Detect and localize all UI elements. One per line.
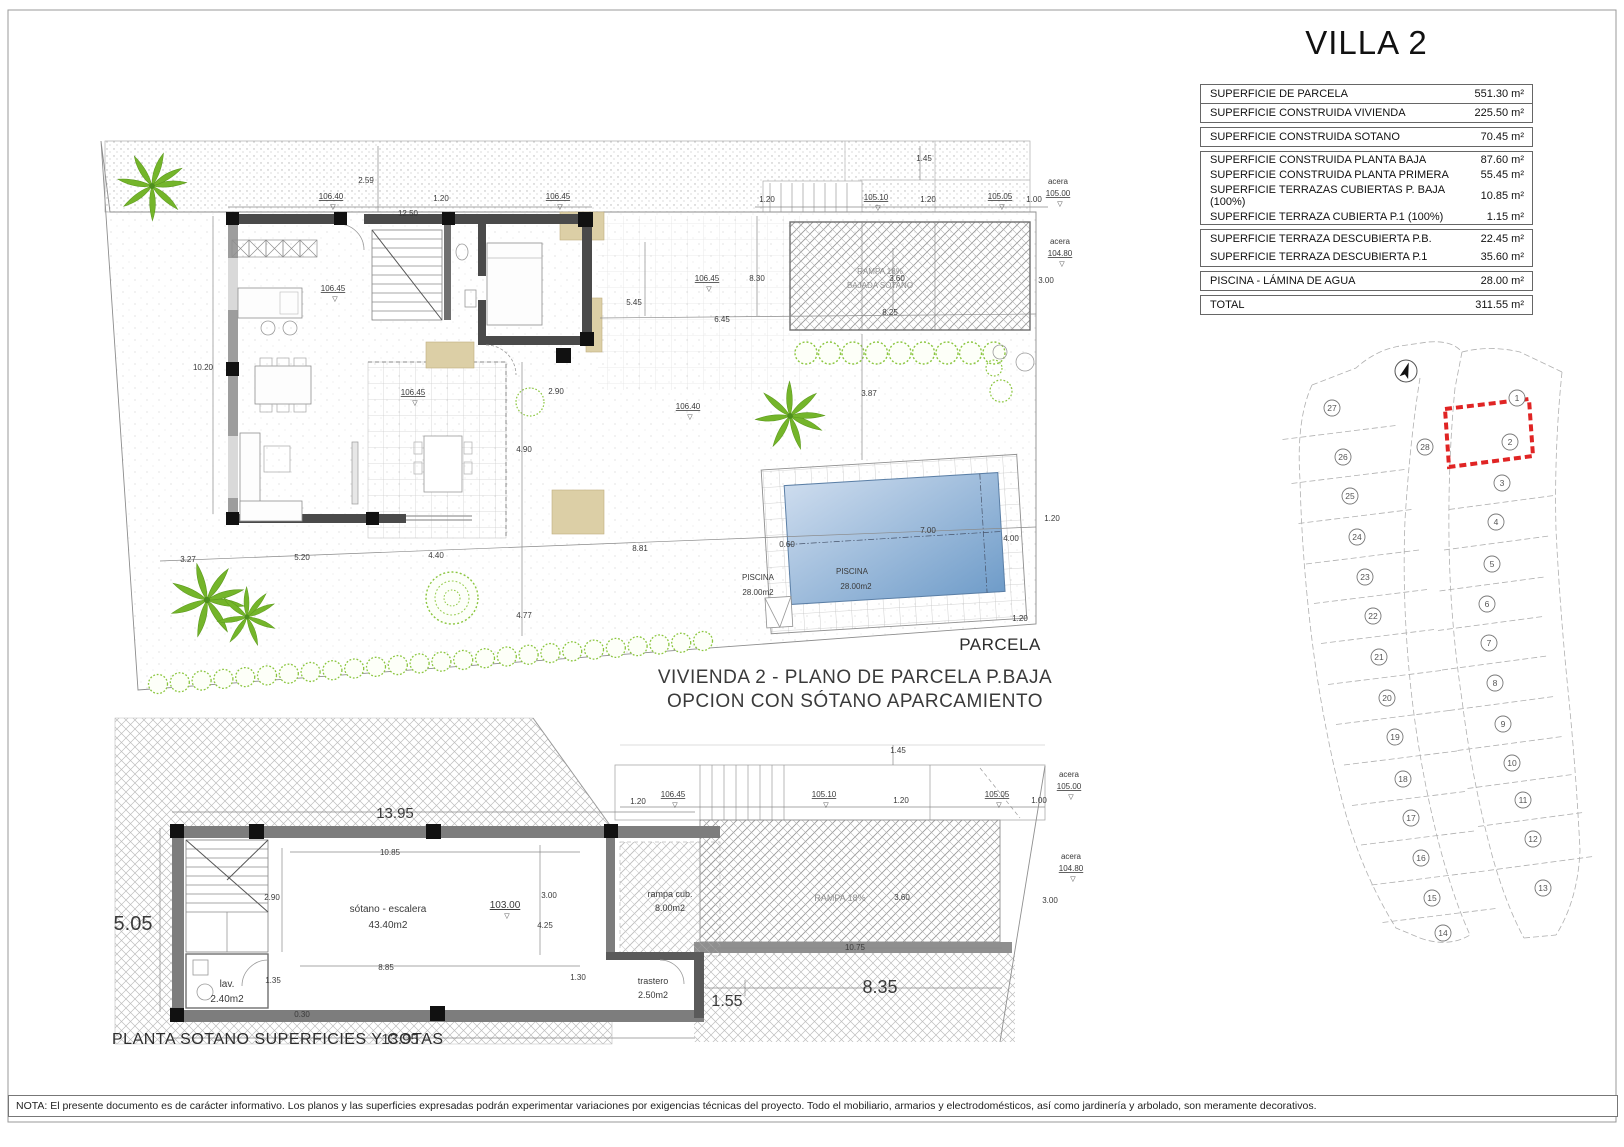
dim-label: 3.00 xyxy=(1042,896,1058,905)
table-row: SUPERFICIE TERRAZA DESCUBIERTA P.135.60 … xyxy=(1201,248,1532,266)
hedge-bush xyxy=(606,638,625,657)
parcel-number: 15 xyxy=(1427,893,1437,903)
parcel-divider xyxy=(1383,909,1496,923)
plan-baja-caption-line2: OPCION CON SÓTANO APARCAMIENTO xyxy=(620,690,1090,712)
parcel-divider xyxy=(1283,426,1396,440)
table-row: SUPERFICIE DE PARCELA551.30 m² xyxy=(1201,85,1532,103)
dim-label: 5.45 xyxy=(626,298,642,307)
dim-label: 1.30 xyxy=(570,973,586,982)
dim-label: acera xyxy=(1050,237,1071,246)
hedge-bush xyxy=(323,661,342,680)
hedge-bush xyxy=(563,642,582,661)
parcel-number: 8 xyxy=(1493,678,1498,688)
dim-label: 7.00 xyxy=(920,526,936,535)
hedge-bush xyxy=(519,645,538,664)
level-marker-icon: ▽ xyxy=(996,802,1002,809)
level-marker-icon: ▽ xyxy=(672,802,678,809)
row-label: PISCINA - LÁMINA DE AGUA xyxy=(1210,275,1356,287)
row-label: SUPERFICIE DE PARCELA xyxy=(1210,88,1348,100)
dim-label: 105.05 xyxy=(988,192,1013,201)
level-marker-icon: ▽ xyxy=(1057,201,1063,208)
dim-label: 6.45 xyxy=(714,315,730,324)
hedge-bush xyxy=(913,342,935,364)
row-value: 22.45 m² xyxy=(1471,233,1524,245)
dim-label: 4.25 xyxy=(537,921,553,930)
hedge-bush xyxy=(214,669,233,688)
row-label: SUPERFICIE CONSTRUIDA PLANTA PRIMERA xyxy=(1210,169,1449,181)
level-marker-icon: ▽ xyxy=(1068,794,1074,801)
north-arrow-icon xyxy=(1395,360,1417,382)
hedge-bush xyxy=(842,342,864,364)
parcel-number: 18 xyxy=(1398,774,1408,784)
hedge-bush xyxy=(819,342,841,364)
dim-label: 106.45 xyxy=(546,192,571,201)
parcel-divider xyxy=(1352,792,1465,806)
dim-label: 8.85 xyxy=(378,963,394,972)
level-marker-icon: ▽ xyxy=(332,296,338,303)
parcel-number: 1 xyxy=(1515,393,1520,403)
dim-label: 28.00m2 xyxy=(840,582,872,591)
row-value: 35.60 m² xyxy=(1471,251,1524,263)
hedge-bush xyxy=(960,342,982,364)
dim-label: 3.00 xyxy=(541,891,557,900)
dim-label: 5.05 xyxy=(114,913,153,935)
dim-label: RAMPA 18% xyxy=(857,267,903,276)
dim-label: 10.20 xyxy=(193,363,214,372)
plan-baja-caption: VIVIENDA 2 - PLANO DE PARCELA P.BAJA OPC… xyxy=(620,666,1090,712)
parcel-number: 20 xyxy=(1382,693,1392,703)
hedge-bush xyxy=(301,662,320,681)
hedge-bush xyxy=(432,652,451,671)
table-row: SUPERFICIE CONSTRUIDA PLANTA BAJA87.60 m… xyxy=(1201,152,1532,167)
row-value: 28.00 m² xyxy=(1471,275,1524,287)
parcel-number: 4 xyxy=(1494,517,1499,527)
plan-sheet: 2.59106.40▽12.501.20106.45▽1.451.20105.1… xyxy=(0,0,1624,1147)
parcel-number: 26 xyxy=(1338,452,1348,462)
level-marker-icon: ▽ xyxy=(823,802,829,809)
highlighted-parcel-outline xyxy=(1445,399,1533,467)
dim-label: 1.00 xyxy=(1026,195,1042,204)
dim-label: acera xyxy=(1061,852,1082,861)
dim-label: PISCINA xyxy=(836,567,869,576)
hedge-bush xyxy=(236,668,255,687)
row-label: TOTAL xyxy=(1210,299,1244,311)
row-label: SUPERFICIE TERRAZA DESCUBIERTA P.B. xyxy=(1210,233,1432,245)
dim-label: 8.25 xyxy=(882,308,898,317)
row-label: SUPERFICIE TERRAZA DESCUBIERTA P.1 xyxy=(1210,251,1427,263)
parcel-number: 7 xyxy=(1487,638,1492,648)
row-value: 1.15 m² xyxy=(1477,211,1524,223)
dim-label: 106.45 xyxy=(321,284,346,293)
level-marker-icon: ▽ xyxy=(706,286,712,293)
dim-label: 105.10 xyxy=(864,193,889,202)
dim-label: 1.55 xyxy=(711,993,742,1010)
plan-baja-drawing: 2.59106.40▽12.501.20106.45▽1.451.20105.1… xyxy=(101,141,1073,694)
parcel-number: 24 xyxy=(1352,532,1362,542)
dim-label: 1.20 xyxy=(1012,614,1028,623)
table-group: TOTAL311.55 m² xyxy=(1200,295,1533,315)
dim-label: 104.80 xyxy=(1059,864,1084,873)
dim-label: 3.00 xyxy=(1038,276,1054,285)
table-row: SUPERFICIE TERRAZAS CUBIERTAS P. BAJA (1… xyxy=(1201,182,1532,209)
dim-label: 8.81 xyxy=(632,544,648,553)
dim-label: acera xyxy=(1059,770,1080,779)
parcel-dividers xyxy=(1283,426,1594,923)
table-row: PISCINA - LÁMINA DE AGUA28.00 m² xyxy=(1201,272,1532,290)
dim-label: 3.27 xyxy=(180,555,196,564)
dim-label: 106.45 xyxy=(661,790,686,799)
level-marker-icon: ▽ xyxy=(875,205,881,212)
dim-label: 104.80 xyxy=(1048,249,1073,258)
parcel-number: 27 xyxy=(1327,403,1337,413)
parcel-number: 13 xyxy=(1538,883,1548,893)
table-row: SUPERFICIE CONSTRUIDA PLANTA PRIMERA55.4… xyxy=(1201,167,1532,182)
parcel-numbers: 1234567891011121314151617181920212223242… xyxy=(1324,390,1551,941)
parcel-divider xyxy=(1314,590,1427,604)
parcel-divider xyxy=(1336,711,1449,725)
level-marker-icon: ▽ xyxy=(999,204,1005,211)
note-text: NOTA: El presente documento es de caráct… xyxy=(16,1100,1317,1112)
row-value: 10.85 m² xyxy=(1471,190,1524,202)
dim-label: 43.40m2 xyxy=(369,920,408,931)
hedge-bush xyxy=(149,675,168,694)
dim-label: 1.45 xyxy=(890,746,906,755)
table-group: SUPERFICIE CONSTRUIDA SOTANO70.45 m² xyxy=(1200,127,1533,147)
dim-label: 0.30 xyxy=(294,1010,310,1019)
plan-baja-caption-line1: VIVIENDA 2 - PLANO DE PARCELA P.BAJA xyxy=(620,666,1090,690)
dim-label: 105.00 xyxy=(1057,782,1082,791)
dim-label: 106.40 xyxy=(319,192,344,201)
row-value: 55.45 m² xyxy=(1471,169,1524,181)
parcel-number: 10 xyxy=(1507,758,1517,768)
parcel-number: 3 xyxy=(1500,478,1505,488)
dim-label: 106.45 xyxy=(695,274,720,283)
dim-label: 28.00m2 xyxy=(742,588,774,597)
hedge-bush xyxy=(410,654,429,673)
parcel-number: 9 xyxy=(1501,719,1506,729)
dim-label: 2.90 xyxy=(548,387,564,396)
parcel-number: 2 xyxy=(1508,437,1513,447)
hedge-bush xyxy=(694,632,713,651)
parcel-divider xyxy=(1292,470,1405,484)
parcel-number: 25 xyxy=(1345,491,1355,501)
dim-label: 12.50 xyxy=(398,209,419,218)
parcel-number: 22 xyxy=(1368,611,1378,621)
pool xyxy=(784,473,1005,605)
parcel-number: 5 xyxy=(1490,559,1495,569)
table-row: SUPERFICIE CONSTRUIDA SOTANO70.45 m² xyxy=(1201,128,1532,146)
dim-label: 8.30 xyxy=(749,274,765,283)
dim-label: 0.60 xyxy=(779,540,795,549)
parcel-number: 17 xyxy=(1406,813,1416,823)
parcel-number: 12 xyxy=(1528,834,1538,844)
surface-summary-table: SUPERFICIE DE PARCELA551.30 m²SUPERFICIE… xyxy=(1200,84,1533,315)
parcel-number: 14 xyxy=(1438,928,1448,938)
hedge-bush xyxy=(345,659,364,678)
hedge-bush xyxy=(866,342,888,364)
dim-label: RAMPA 18% xyxy=(814,893,865,903)
dim-label: 1.20 xyxy=(920,195,936,204)
hedge-bush xyxy=(541,644,560,663)
parcel-divider xyxy=(1344,751,1457,765)
parcel-divider xyxy=(1449,496,1554,510)
dim-label: 103.00 xyxy=(490,900,521,911)
row-value: 87.60 m² xyxy=(1471,154,1524,166)
dim-label: lav. xyxy=(220,979,235,990)
dim-label: 2.90 xyxy=(264,893,280,902)
dim-label: 3.87 xyxy=(861,389,877,398)
plan-sotano-drawing: 13.9510.852.905.05sótano - escalera43.40… xyxy=(114,718,1084,1048)
dim-label: PISCINA xyxy=(742,573,775,582)
row-label: SUPERFICIE TERRAZAS CUBIERTAS P. BAJA (1… xyxy=(1210,184,1471,208)
hedge-bush xyxy=(497,647,516,666)
parcel-number: 21 xyxy=(1374,652,1384,662)
row-label: SUPERFICIE CONSTRUIDA SOTANO xyxy=(1210,131,1400,143)
parcel-divider xyxy=(1478,813,1583,827)
dim-label: 8.00m2 xyxy=(655,903,685,913)
hedge-bush xyxy=(628,637,647,656)
parcel-divider xyxy=(1440,577,1545,591)
dim-label: 3.60 xyxy=(894,893,910,902)
level-marker-icon: ▽ xyxy=(1059,261,1065,268)
hedge-bush xyxy=(170,673,189,692)
parcel-number: 19 xyxy=(1390,732,1400,742)
parcel-divider xyxy=(1468,775,1573,789)
bush xyxy=(426,572,478,624)
dim-label: 4.90 xyxy=(516,445,532,454)
dim-label: 10.85 xyxy=(380,848,401,857)
table-row: TOTAL311.55 m² xyxy=(1201,296,1532,314)
row-label: SUPERFICIE CONSTRUIDA PLANTA BAJA xyxy=(1210,154,1426,166)
parcel-number: 28 xyxy=(1420,442,1430,452)
parcela-caption: PARCELA xyxy=(880,635,1120,655)
dim-label: 5.20 xyxy=(294,553,310,562)
parcel-divider xyxy=(1306,550,1419,564)
parcel-divider xyxy=(1444,536,1549,550)
dim-label: 1.00 xyxy=(1031,796,1047,805)
parcel-number: 23 xyxy=(1360,572,1370,582)
hedge-bush xyxy=(192,671,211,690)
hedge-row xyxy=(795,342,1005,364)
site-boundaries xyxy=(1299,342,1580,943)
row-value: 70.45 m² xyxy=(1471,131,1524,143)
parcel-divider xyxy=(1299,510,1412,524)
parcel-divider xyxy=(1438,617,1543,631)
parcel-divider xyxy=(1321,630,1434,644)
dim-label: 10.75 xyxy=(845,943,866,952)
ramp-area xyxy=(790,222,1030,330)
dim-label: 1.45 xyxy=(916,154,932,163)
dim-label: 13.95 xyxy=(376,805,414,822)
dim-label: 8.35 xyxy=(862,977,897,997)
parcel-divider xyxy=(1488,857,1593,871)
parcel-number: 16 xyxy=(1416,853,1426,863)
dim-label: BAJADA SÓTANO xyxy=(847,281,913,290)
note-bar: NOTA: El presente documento es de caráct… xyxy=(8,1095,1618,1117)
hedge-bush xyxy=(476,649,495,668)
table-group: SUPERFICIE DE PARCELA551.30 m²SUPERFICIE… xyxy=(1200,84,1533,123)
dim-label: 1.20 xyxy=(1044,514,1060,523)
row-value: 551.30 m² xyxy=(1464,88,1524,100)
table-group: SUPERFICIE CONSTRUIDA PLANTA BAJA87.60 m… xyxy=(1200,151,1533,225)
table-group: PISCINA - LÁMINA DE AGUA28.00 m² xyxy=(1200,271,1533,291)
parcel-divider xyxy=(1449,697,1554,711)
dim-label: 105.05 xyxy=(985,790,1010,799)
hedge-bush xyxy=(367,657,386,676)
dim-label: 105.00 xyxy=(1046,189,1071,198)
row-value: 311.55 m² xyxy=(1465,299,1524,311)
parcel-divider xyxy=(1458,737,1563,751)
dim-label: 105.10 xyxy=(812,790,837,799)
dim-label: 1.20 xyxy=(893,796,909,805)
table-row: SUPERFICIE TERRAZA DESCUBIERTA P.B.22.45… xyxy=(1201,230,1532,248)
table-row: SUPERFICIE TERRAZA CUBIERTA P.1 (100%)1.… xyxy=(1201,209,1532,224)
row-value: 225.50 m² xyxy=(1464,107,1524,119)
hedge-bush xyxy=(279,664,298,683)
plan-sotano-caption: PLANTA SOTANO SUPERFICIES Y COTAS xyxy=(112,1031,444,1049)
hedge-bush xyxy=(936,342,958,364)
hedge-bush xyxy=(650,635,669,654)
level-marker-icon: ▽ xyxy=(557,204,563,211)
row-label: SUPERFICIE TERRAZA CUBIERTA P.1 (100%) xyxy=(1210,211,1443,223)
level-marker-icon: ▽ xyxy=(330,204,336,211)
level-marker-icon: ▽ xyxy=(412,400,418,407)
table-row: SUPERFICIE CONSTRUIDA VIVIENDA225.50 m² xyxy=(1201,103,1532,122)
hedge-bush xyxy=(795,342,817,364)
dim-label: trastero xyxy=(638,976,669,986)
parcel-divider xyxy=(1328,671,1441,685)
hedge-bush xyxy=(388,656,407,675)
dim-label: 1.20 xyxy=(630,797,646,806)
hedge-bush xyxy=(454,650,473,669)
hedge-bush xyxy=(672,633,691,652)
parcel-number: 11 xyxy=(1519,795,1528,805)
dim-label: 1.35 xyxy=(265,976,281,985)
dim-label: 2.59 xyxy=(358,176,374,185)
dim-label: 2.40m2 xyxy=(210,994,244,1005)
dim-label: 4.40 xyxy=(428,551,444,560)
dim-label: 1.20 xyxy=(759,195,775,204)
hedge-bush xyxy=(889,342,911,364)
pool-area xyxy=(757,454,1027,634)
ramp-sotano xyxy=(700,820,1000,942)
table-group: SUPERFICIE TERRAZA DESCUBIERTA P.B.22.45… xyxy=(1200,229,1533,267)
row-label: SUPERFICIE CONSTRUIDA VIVIENDA xyxy=(1210,107,1406,119)
dim-label: 4.00 xyxy=(1003,534,1019,543)
hedge-bush xyxy=(258,666,277,685)
dim-label: 1.20 xyxy=(433,194,449,203)
site-location-plan: 1234567891011121314151617181920212223242… xyxy=(1283,342,1594,943)
level-marker-icon: ▽ xyxy=(504,913,510,920)
dim-label: sótano - escalera xyxy=(350,904,427,915)
dim-label: acera xyxy=(1048,177,1069,186)
parcel-number: 6 xyxy=(1485,599,1490,609)
dim-label: 4.77 xyxy=(516,611,532,620)
rampa-cubierta xyxy=(620,842,720,956)
villa-title: VILLA 2 xyxy=(1200,24,1533,62)
parcel-divider xyxy=(1372,871,1485,885)
dim-label: 106.40 xyxy=(676,402,701,411)
level-marker-icon: ▽ xyxy=(687,414,693,421)
parcel-divider xyxy=(1361,831,1474,845)
hedge-bush xyxy=(585,640,604,659)
dim-label: 2.50m2 xyxy=(638,990,668,1000)
level-marker-icon: ▽ xyxy=(1070,876,1076,883)
dim-label: rampa cub. xyxy=(647,889,692,899)
street-strip xyxy=(105,141,1030,212)
dim-label: 106.45 xyxy=(401,388,426,397)
